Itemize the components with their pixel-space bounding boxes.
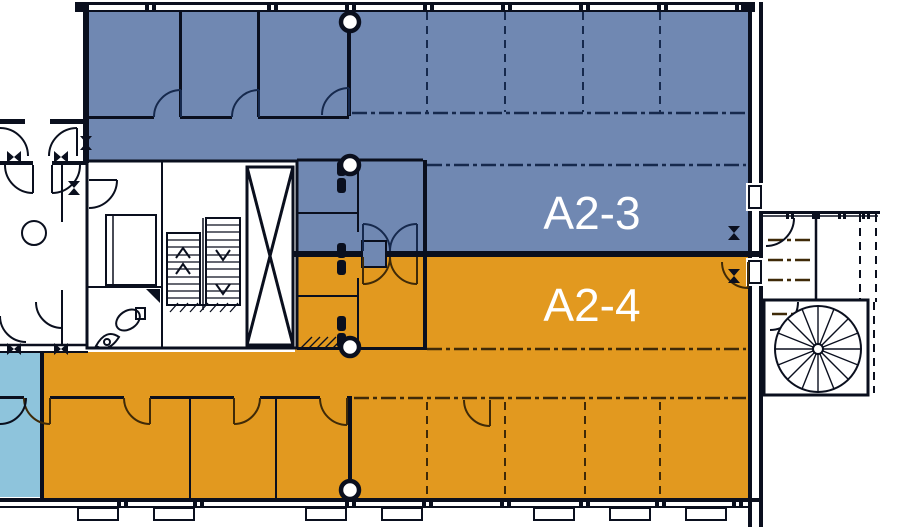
zone-label-a2-4: A2-4	[543, 279, 640, 331]
accent-room-area	[0, 352, 40, 497]
window-sills-south	[78, 508, 726, 520]
spiral-staircase	[775, 306, 861, 392]
zone-a2-4-area-lower	[42, 352, 752, 500]
wing-divider-wall	[40, 352, 44, 500]
orange-corridor-walls	[0, 396, 352, 399]
south-facade	[0, 498, 763, 520]
shaft-box	[362, 241, 386, 267]
zone-label-a2-3: A2-3	[543, 187, 640, 239]
radiator-glyphs	[337, 161, 346, 348]
floor-plan: A2-3 A2-4	[0, 0, 907, 532]
